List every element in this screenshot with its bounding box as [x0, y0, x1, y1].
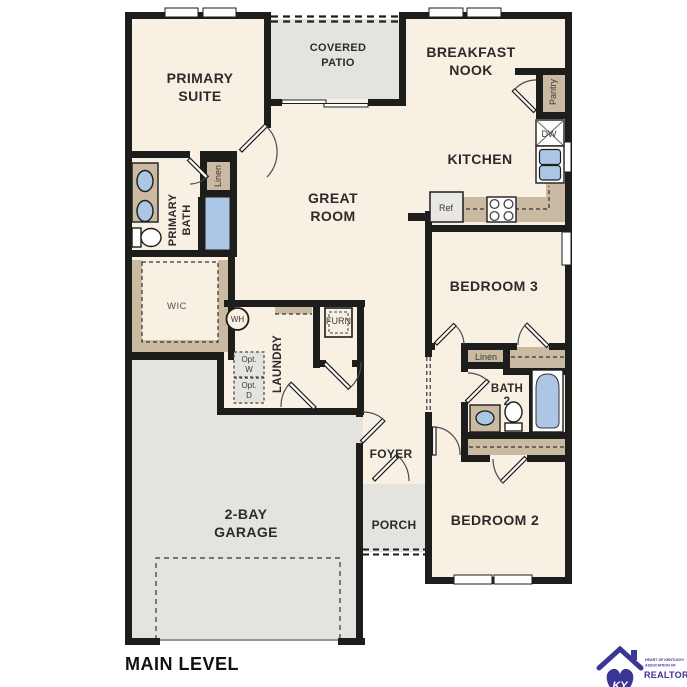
label-laundry: LAUNDRY: [272, 335, 284, 393]
realtors-logo: KY ® HEART OF KENTUCKY ASSOCIATION OF RE…: [599, 649, 687, 687]
logo-monogram: KY: [612, 680, 629, 687]
dishwasher: DW: [536, 120, 564, 146]
label-breakfast-nook-2: NOOK: [449, 62, 493, 78]
window: [203, 8, 236, 17]
bath2-tub: [532, 370, 563, 432]
label-kitchen: KITCHEN: [447, 151, 512, 167]
window: [429, 8, 463, 17]
refrigerator: Ref: [430, 192, 463, 222]
label-primary-bath-2: BATH: [181, 205, 193, 236]
label-breakfast-nook-1: BREAKFAST: [426, 44, 515, 60]
floor-plan-svg: Ref DW: [0, 0, 687, 687]
primary-toilet: [132, 228, 161, 247]
dishwasher-label: DW: [542, 129, 557, 139]
opt-dryer-label-2: D: [246, 391, 252, 400]
label-great-room-2: ROOM: [310, 208, 355, 224]
label-primary-bath-1: PRIMARY: [167, 193, 179, 246]
window: [467, 8, 501, 17]
primary-vanity: [132, 163, 158, 222]
label-foyer: FOYER: [370, 447, 413, 461]
water-heater-label: WH: [231, 315, 245, 324]
water-heater: WH: [227, 308, 249, 330]
label-bath2-2: 2: [504, 396, 511, 408]
logo-line1: HEART OF KENTUCKY: [645, 658, 685, 662]
label-garage-1: 2-BAY: [225, 506, 268, 522]
refrigerator-label: Ref: [439, 203, 454, 213]
label-wic: WIC: [167, 301, 187, 312]
opt-washer-label-2: W: [245, 365, 253, 374]
label-porch: PORCH: [372, 518, 417, 532]
label-primary-suite-1: PRIMARY: [167, 70, 234, 86]
window: [165, 8, 198, 17]
window: [494, 575, 532, 584]
label-bath2-1: BATH: [491, 383, 523, 395]
wic-shelf-left: [132, 260, 142, 352]
range-stove: [487, 197, 516, 222]
logo-chimney-icon: [631, 650, 637, 660]
label-garage-2: GARAGE: [214, 524, 278, 540]
label-primary-suite-2: SUITE: [178, 88, 221, 104]
label-bedroom3: BEDROOM 3: [450, 278, 538, 294]
floor-plan-page: Ref DW: [0, 0, 687, 687]
label-covered-patio-1: COVERED: [310, 42, 367, 54]
kitchen-sink: [536, 146, 564, 183]
label-linen-hall: Linen: [475, 352, 497, 362]
dryer-optional: Opt. D: [234, 378, 264, 403]
page-title: MAIN LEVEL: [125, 654, 239, 674]
label-linen-primary: Linen: [213, 165, 223, 187]
bedroom2-closet-shelf: [468, 439, 565, 455]
washer-optional: Opt. W: [234, 352, 264, 377]
opt-washer-label-1: Opt.: [241, 355, 256, 364]
label-bedroom2: BEDROOM 2: [451, 512, 539, 528]
label-covered-patio-2: PATIO: [321, 57, 355, 69]
window: [454, 575, 492, 584]
logo-line2: ASSOCIATION OF: [645, 664, 676, 668]
window: [562, 232, 571, 265]
primary-shower: [205, 197, 230, 250]
furnace-label: FURN: [326, 316, 351, 326]
bath2-vanity: [470, 405, 500, 432]
opt-dryer-label-1: Opt.: [241, 381, 256, 390]
logo-line3: REALTORS®: [644, 670, 687, 680]
label-pantry: Pantry: [548, 78, 558, 105]
label-great-room-1: GREAT: [308, 190, 358, 206]
